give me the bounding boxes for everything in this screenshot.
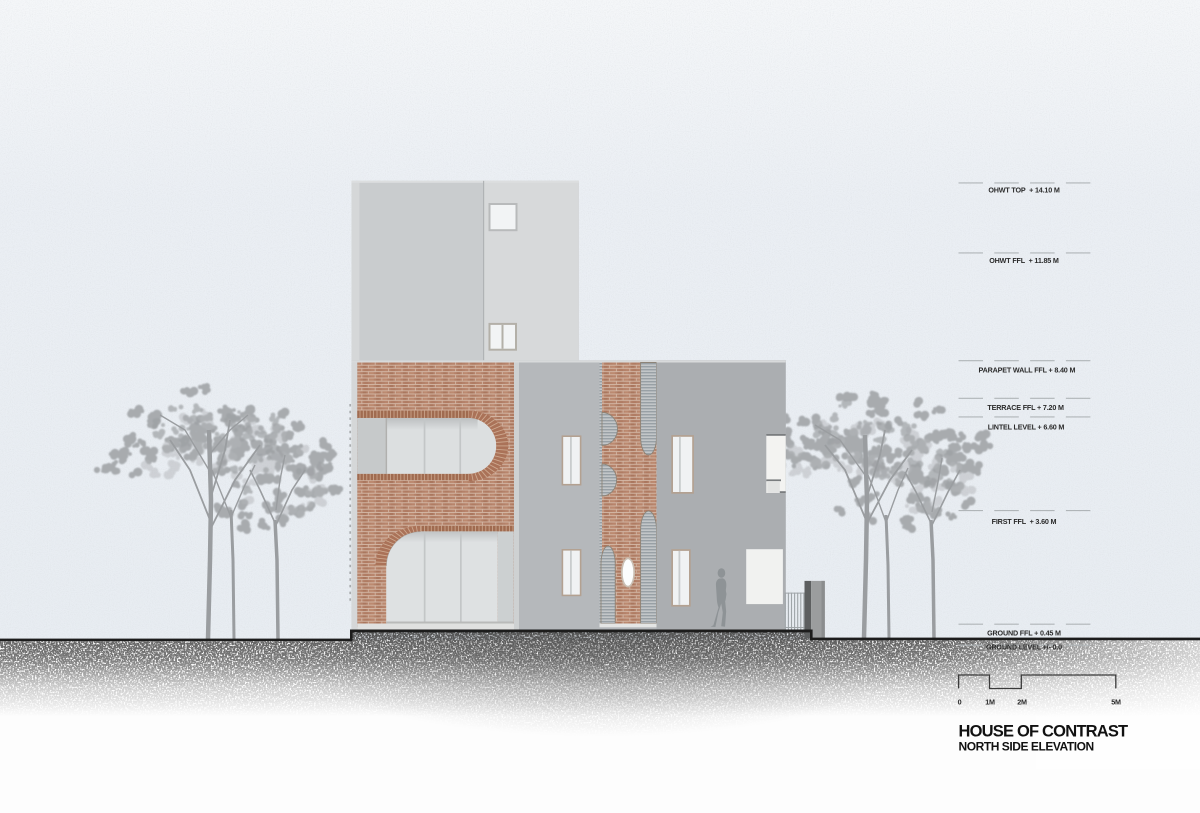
svg-text:OHWT FFL + 11.85 M: OHWT FFL + 11.85 M bbox=[989, 256, 1059, 265]
svg-text:HOUSE OF CONTRAST: HOUSE OF CONTRAST bbox=[959, 722, 1129, 740]
svg-text:PARAPET WALL FFL + 8.40 M: PARAPET WALL FFL + 8.40 M bbox=[979, 365, 1076, 374]
svg-text:LINTEL LEVEL + 6.60 M: LINTEL LEVEL + 6.60 M bbox=[988, 423, 1065, 432]
svg-text:5M: 5M bbox=[1111, 698, 1121, 707]
svg-text:OHWT TOP + 14.10 M: OHWT TOP + 14.10 M bbox=[988, 186, 1060, 195]
svg-text:NORTH SIDE ELEVATION: NORTH SIDE ELEVATION bbox=[959, 740, 1094, 754]
svg-text:0: 0 bbox=[958, 698, 962, 707]
svg-text:2M: 2M bbox=[1017, 698, 1027, 707]
svg-text:TERRACE FFL + 7.20 M: TERRACE FFL + 7.20 M bbox=[987, 403, 1064, 412]
svg-text:FIRST FFL + 3.60 M: FIRST FFL + 3.60 M bbox=[992, 517, 1057, 526]
svg-text:GROUND LEVEL +/- 0.0: GROUND LEVEL +/- 0.0 bbox=[986, 642, 1062, 651]
svg-text:1M: 1M bbox=[985, 698, 995, 707]
svg-text:GROUND FFL + 0.45 M: GROUND FFL + 0.45 M bbox=[987, 628, 1061, 637]
